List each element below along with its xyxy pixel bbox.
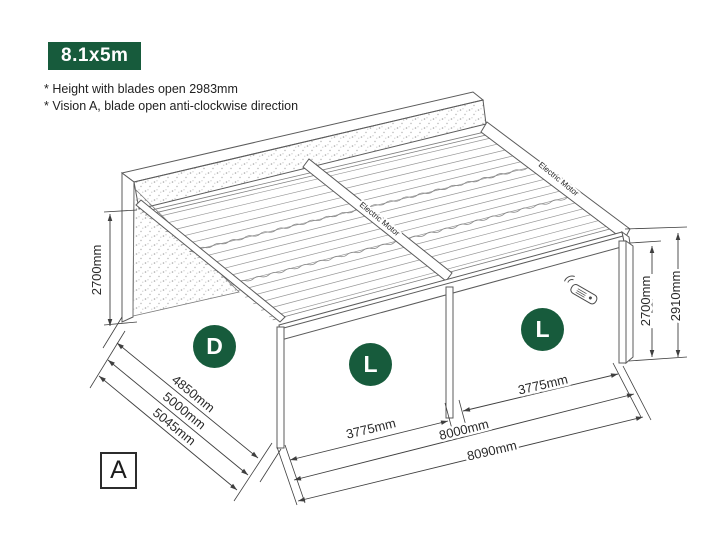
extension-line — [625, 227, 687, 229]
wireless-signal-icon — [568, 280, 574, 283]
dimension-arrow — [676, 350, 681, 357]
dimension-label: 3775mm — [345, 415, 398, 441]
dimension-label: 8090mm — [466, 438, 519, 464]
badge-left-side: D — [193, 325, 236, 368]
dimension-arrow — [650, 246, 655, 253]
dimension-label: 2700mm — [89, 245, 104, 296]
dimension-arrow — [611, 373, 618, 377]
post-middle — [446, 287, 453, 418]
wall-left-face — [122, 173, 134, 322]
dimension-arrow — [108, 214, 113, 221]
view-marker-a: A — [100, 452, 137, 489]
pergola-spec-sheet: 8.1x5m * Height with blades open 2983mm … — [0, 0, 720, 554]
dimension-arrow — [290, 456, 297, 460]
extension-line — [103, 317, 122, 348]
extension-line — [613, 363, 641, 417]
extension-line — [260, 449, 281, 482]
posts — [277, 241, 633, 448]
dimension-arrow — [636, 416, 643, 420]
extension-line — [623, 366, 651, 420]
remote-control-icon — [565, 276, 599, 305]
extension-line — [630, 241, 661, 243]
post-left — [277, 327, 284, 448]
badge-bay2: L — [521, 308, 564, 351]
dimension-arrow — [294, 476, 301, 480]
extension-line — [629, 357, 687, 361]
badge-bay1: L — [349, 343, 392, 386]
wall-front-band — [134, 100, 486, 209]
dimension-arrow — [676, 233, 681, 240]
dimension-arrow — [463, 407, 470, 411]
post-right — [619, 241, 626, 363]
dimension-label: 2910mm — [668, 271, 683, 322]
dimension-arrow — [441, 420, 448, 424]
dimension-label: 2700mm — [638, 276, 653, 327]
extension-line — [277, 447, 297, 505]
dimension-arrow — [298, 497, 305, 501]
post-right-side-face — [626, 241, 633, 363]
dimension-label: 3775mm — [517, 372, 570, 398]
dimension-arrow — [650, 350, 655, 357]
dimension-label: 8000mm — [438, 416, 491, 443]
extension-line — [90, 331, 125, 388]
extension-line — [285, 445, 305, 503]
